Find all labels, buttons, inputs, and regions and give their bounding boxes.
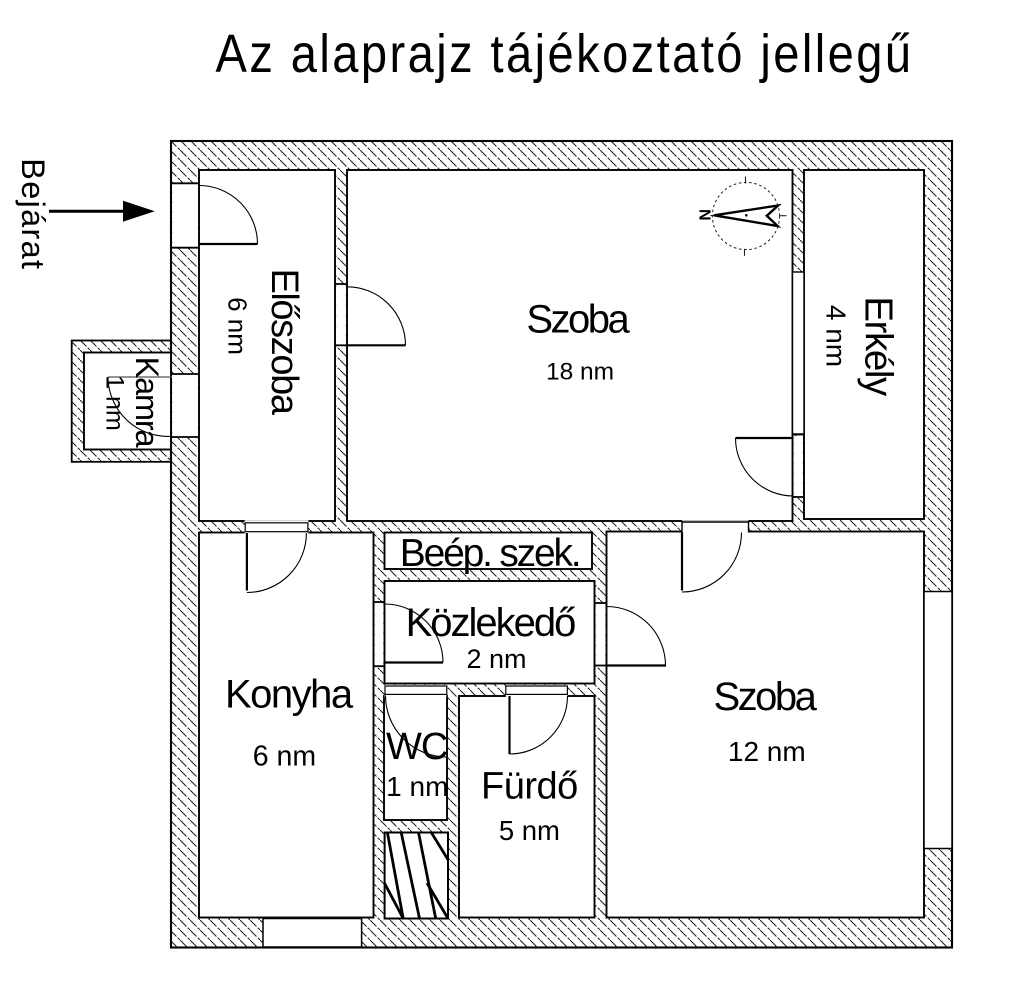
svg-text:WC: WC [386, 726, 447, 768]
svg-text:1 nm: 1 nm [101, 375, 129, 431]
svg-text:Erkély: Erkély [856, 296, 899, 397]
svg-text:Konyha: Konyha [225, 673, 354, 717]
svg-text:6 nm: 6 nm [253, 741, 316, 773]
svg-text:Kamra: Kamra [129, 357, 165, 449]
svg-text:N: N [695, 209, 712, 221]
svg-text:1 nm: 1 nm [386, 771, 448, 802]
svg-text:Szoba: Szoba [526, 298, 630, 342]
svg-text:Az alaprajz tájékoztató jelleg: Az alaprajz tájékoztató jellegű [216, 23, 914, 84]
svg-text:18 nm: 18 nm [546, 358, 614, 385]
svg-text:4 nm: 4 nm [821, 305, 852, 367]
svg-text:2 nm: 2 nm [466, 644, 526, 674]
svg-text:Beép. szek.: Beép. szek. [400, 532, 580, 575]
svg-text:Fürdő: Fürdő [481, 766, 578, 808]
svg-text:6 nm: 6 nm [223, 297, 253, 355]
svg-text:5 nm: 5 nm [499, 815, 560, 846]
svg-text:Előszoba: Előszoba [263, 268, 305, 415]
svg-text:12 nm: 12 nm [728, 736, 806, 767]
svg-text:Szoba: Szoba [713, 675, 817, 719]
svg-text:Bejárat: Bejárat [15, 158, 51, 270]
svg-text:Közlekedő: Közlekedő [406, 601, 576, 645]
